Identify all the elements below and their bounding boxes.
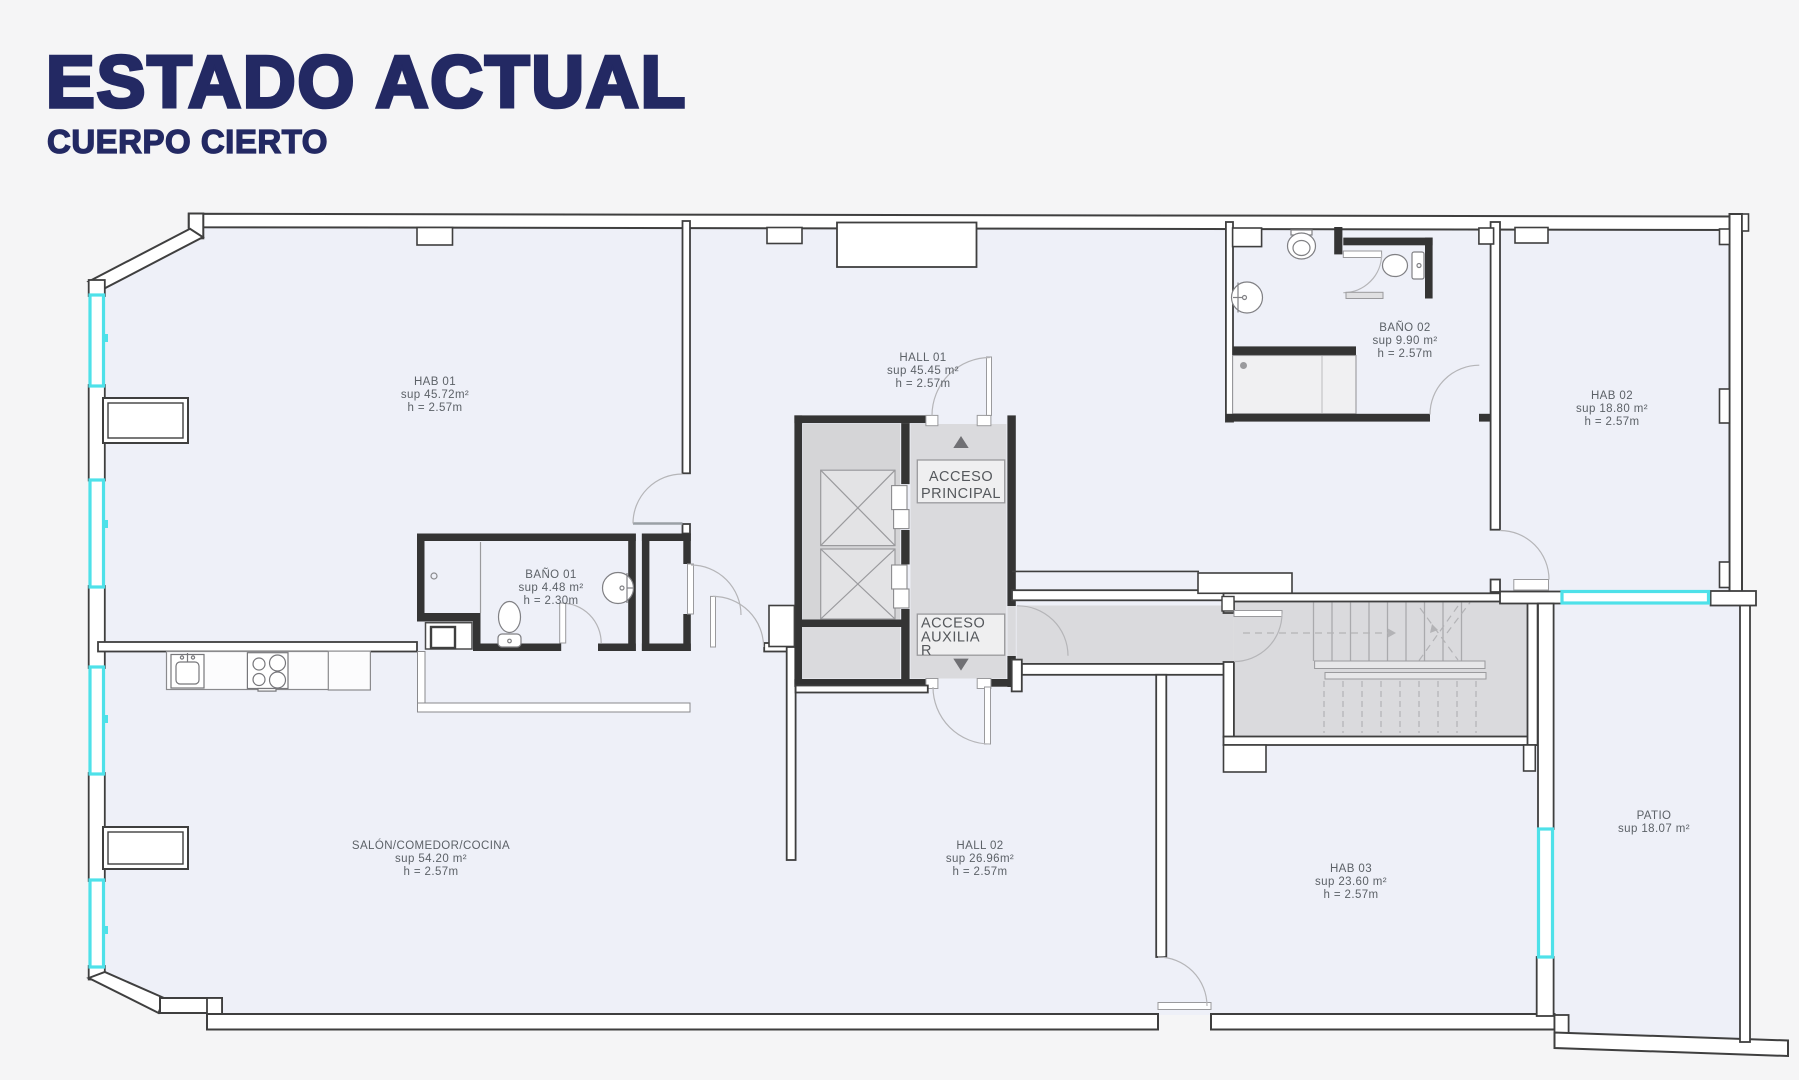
- svg-text:sup 45.45 m²: sup 45.45 m²: [887, 365, 959, 377]
- svg-text:BAÑO 01: BAÑO 01: [525, 568, 576, 581]
- svg-text:PATIO: PATIO: [1637, 810, 1672, 822]
- svg-text:PRINCIPAL: PRINCIPAL: [921, 486, 1001, 502]
- svg-text:sup 54.20 m²: sup 54.20 m²: [395, 853, 467, 865]
- svg-text:h = 2.57m: h = 2.57m: [403, 866, 458, 878]
- svg-text:h = 2.57m: h = 2.57m: [895, 378, 950, 390]
- svg-text:h = 2.57m: h = 2.57m: [1377, 348, 1432, 360]
- svg-text:ESTADO ACTUAL: ESTADO ACTUAL: [46, 42, 687, 123]
- svg-text:ACCESO: ACCESO: [929, 469, 993, 485]
- svg-text:sup 18.80 m²: sup 18.80 m²: [1576, 403, 1648, 415]
- svg-text:sup 9.90 m²: sup 9.90 m²: [1372, 335, 1437, 347]
- svg-text:h = 2.57m: h = 2.57m: [1323, 889, 1378, 901]
- svg-text:R: R: [921, 643, 932, 659]
- svg-text:sup 45.72m²: sup 45.72m²: [401, 389, 469, 401]
- svg-text:SALÓN/COMEDOR/COCINA: SALÓN/COMEDOR/COCINA: [352, 839, 510, 852]
- svg-text:h = 2.57m: h = 2.57m: [1584, 416, 1639, 428]
- svg-text:CUERPO CIERTO: CUERPO CIERTO: [47, 123, 328, 160]
- svg-text:sup 23.60 m²: sup 23.60 m²: [1315, 876, 1387, 888]
- svg-text:HAB 02: HAB 02: [1591, 390, 1633, 402]
- svg-text:sup 4.48 m²: sup 4.48 m²: [518, 582, 583, 594]
- svg-text:sup 26.96m²: sup 26.96m²: [946, 853, 1014, 865]
- svg-text:HAB 03: HAB 03: [1330, 863, 1372, 875]
- svg-text:HALL 01: HALL 01: [899, 352, 946, 364]
- svg-text:h = 2.57m: h = 2.57m: [952, 866, 1007, 878]
- svg-text:h = 2.57m: h = 2.57m: [407, 402, 462, 414]
- svg-text:HAB 01: HAB 01: [414, 376, 456, 388]
- svg-text:HALL 02: HALL 02: [956, 840, 1003, 852]
- svg-text:sup 18.07 m²: sup 18.07 m²: [1618, 823, 1690, 835]
- svg-text:h = 2.30m: h = 2.30m: [523, 595, 578, 607]
- svg-text:BAÑO 02: BAÑO 02: [1379, 321, 1430, 334]
